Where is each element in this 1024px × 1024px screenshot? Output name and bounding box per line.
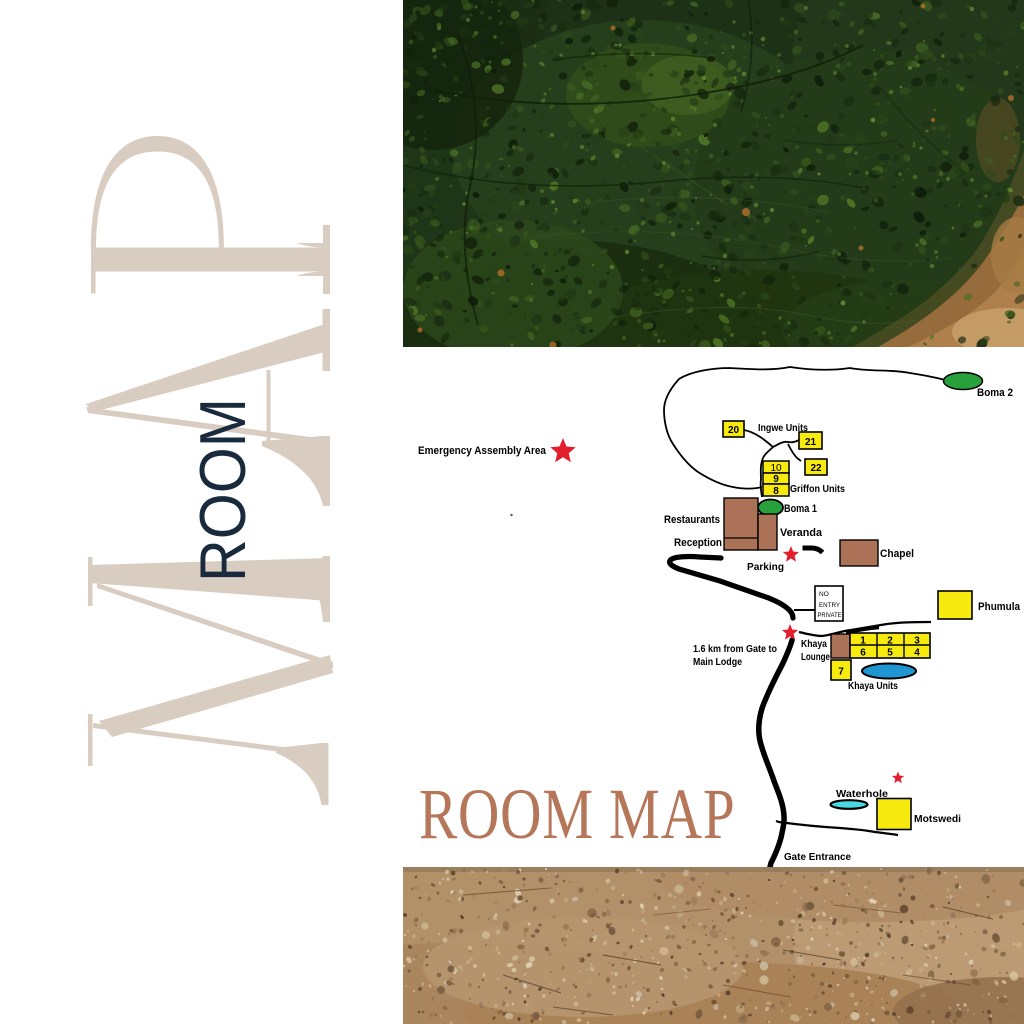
svg-text:Emergency Assembly Area: Emergency Assembly Area [418, 445, 547, 457]
svg-text:20: 20 [728, 425, 740, 436]
svg-text:1.6 km from Gate to: 1.6 km from Gate to [693, 643, 777, 655]
svg-text:1: 1 [860, 636, 866, 647]
svg-text:Griffon Units: Griffon Units [790, 483, 845, 495]
svg-text:Reception: Reception [674, 537, 722, 549]
svg-text:10: 10 [770, 463, 782, 474]
svg-text:PRIVATE: PRIVATE [818, 612, 843, 619]
svg-text:Boma 1: Boma 1 [784, 503, 817, 515]
svg-text:Phumula: Phumula [978, 601, 1021, 613]
svg-text:3: 3 [914, 636, 920, 647]
svg-text:4: 4 [914, 648, 920, 659]
svg-text:NO: NO [819, 591, 829, 598]
svg-text:Restaurants: Restaurants [664, 514, 720, 526]
svg-text:5: 5 [887, 648, 893, 659]
svg-text:7: 7 [838, 667, 844, 678]
svg-text:Main Lodge: Main Lodge [693, 656, 742, 668]
svg-text:9: 9 [773, 474, 779, 485]
svg-text:22: 22 [810, 463, 822, 474]
svg-text:Gate Entrance: Gate Entrance [784, 851, 851, 863]
svg-text:2: 2 [887, 636, 893, 647]
svg-text:6: 6 [860, 648, 866, 659]
svg-text:Chapel: Chapel [880, 548, 914, 560]
svg-text:Boma 2: Boma 2 [977, 387, 1013, 399]
svg-text:8: 8 [773, 486, 779, 497]
svg-text:Lounge: Lounge [801, 651, 830, 663]
svg-text:Veranda: Veranda [780, 527, 823, 539]
svg-text:ENTRY: ENTRY [819, 602, 841, 609]
svg-text:21: 21 [805, 437, 817, 448]
svg-text:Parking: Parking [747, 561, 784, 573]
svg-text:Khaya: Khaya [801, 638, 827, 650]
svg-text:Khaya Units: Khaya Units [848, 680, 898, 692]
svg-text:Motswedi: Motswedi [914, 813, 961, 825]
